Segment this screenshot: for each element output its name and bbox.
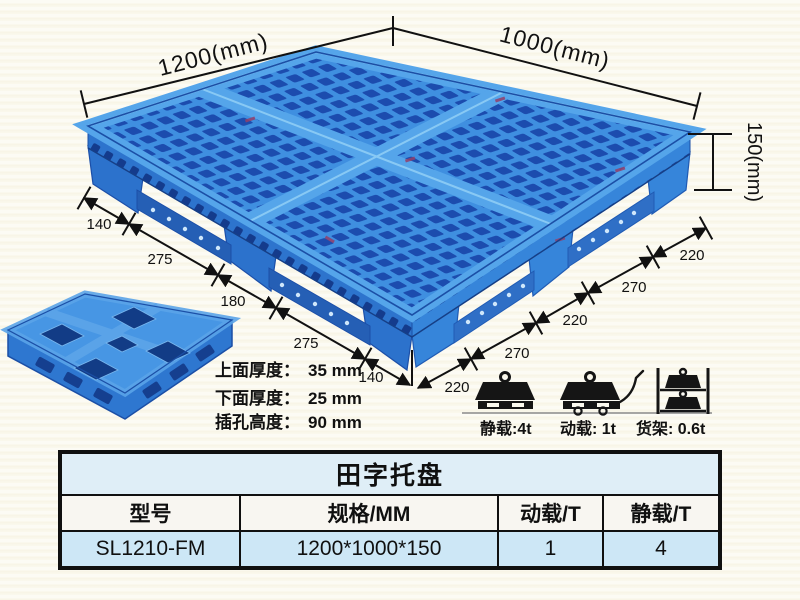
dim-label: 270 [504,345,529,362]
dim-label: 140 [358,369,383,386]
static-load-icon [475,373,535,410]
dim-label: 220 [562,312,587,329]
thickness-note-line: 上面厚度：35 mm [215,360,362,380]
dim-label: 220 [444,379,469,396]
dim-depth-label: 1000(mm) [497,21,613,74]
table-row: SL1210-FM 1200*1000*150 1 4 [60,531,720,568]
dim-label: 140 [86,216,111,233]
cell-static-load: 4 [603,531,720,568]
dim-label: 275 [147,251,172,268]
rack-load-icon [658,368,708,414]
dim-label: 220 [679,247,704,264]
thickness-note-line: 插孔高度：90 mm [215,412,362,432]
thickness-note-line: 下面厚度：25 mm [215,388,362,408]
cell-dynamic-load: 1 [498,531,603,568]
header-dynamic-load: 动载/T [498,495,603,531]
header-model: 型号 [60,495,240,531]
dim-label: 180 [220,293,245,310]
small-pallet-illustration [8,294,232,419]
table-header-row: 型号 规格/MM 动载/T 静载/T [60,495,720,531]
header-static-load: 静载/T [603,495,720,531]
dynamic-load-label: 动载: 1t [560,420,617,438]
rack-load-label: 货架: 0.6t [636,419,706,438]
header-spec: 规格/MM [240,495,498,531]
dim-height-label: 150(mm) [743,122,765,202]
product-spec-sheet: 1200(mm) 1000(mm) 150(mm) 140 275 180 27… [0,0,800,600]
cell-model: SL1210-FM [60,531,240,568]
load-ratings: 静载:4t 动载: 1t 货架: 0.6t [462,368,712,438]
dim-label: 275 [293,335,318,352]
dynamic-load-icon [560,371,643,415]
table-title-row: 田字托盘 [60,452,720,495]
cell-spec: 1200*1000*150 [240,531,498,568]
dim-label: 270 [621,279,646,296]
static-load-label: 静载:4t [480,419,532,438]
spec-table: 田字托盘 型号 规格/MM 动载/T 静载/T SL1210-FM 1200*1… [58,450,722,570]
table-title: 田字托盘 [60,452,720,495]
thickness-notes: 上面厚度：35 mm 下面厚度：25 mm 插孔高度：90 mm [215,360,362,432]
